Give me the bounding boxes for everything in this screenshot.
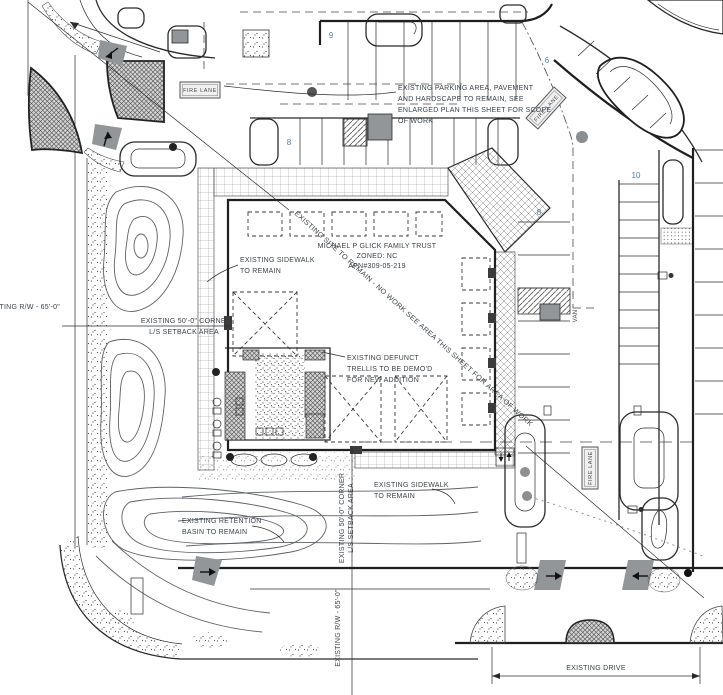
- site-plan-drawing: 9 8 6 FIRE LANE: [0, 0, 723, 695]
- paver-walk: [214, 168, 448, 196]
- parking-stall-lines: [695, 150, 723, 414]
- paver-walk: [495, 252, 515, 455]
- sidewalk-lower-note: EXISTING SIDEWALK TO REMAIN: [374, 482, 455, 504]
- svg-text:ENLARGED PLAN THIS SHEET FOR S: ENLARGED PLAN THIS SHEET FOR SCOPE: [398, 107, 551, 114]
- svg-text:FOR NEW ADDITION: FOR NEW ADDITION: [347, 377, 419, 384]
- area-of-work: [224, 316, 362, 454]
- sidewalk-band: [60, 536, 182, 659]
- setback-south-note: EXISTING 50'-0" CORNER L/S SETBACK AREA: [339, 473, 355, 563]
- stall-count: 10: [632, 171, 641, 180]
- paver-walk: [355, 452, 515, 468]
- svg-text:ZONED: NC: ZONED: NC: [357, 253, 398, 260]
- stall-count: 8: [537, 208, 542, 217]
- svg-text:BASIN TO REMAIN: BASIN TO REMAIN: [182, 529, 247, 536]
- ramp-arrow-icon: [92, 124, 122, 150]
- landscape-wedge: [29, 68, 82, 153]
- planter-row-east: [462, 258, 496, 425]
- fire-lane-sign: FIRE LANE: [582, 447, 598, 489]
- svg-text:TO REMAIN: TO REMAIN: [240, 268, 281, 275]
- tree-dot: [307, 87, 317, 97]
- svg-text:L/S SETBACK AREA: L/S SETBACK AREA: [348, 483, 355, 553]
- sidewalk-upper-note: EXISTING SIDEWALK TO REMAIN: [207, 257, 315, 282]
- svg-text:TRELLIS TO BE DEMO'D: TRELLIS TO BE DEMO'D: [347, 366, 432, 373]
- svg-text:EXISTING 50'-0" CORNER: EXISTING 50'-0" CORNER: [141, 318, 231, 325]
- trellis-outline: [233, 292, 297, 356]
- landscape-wedge: [107, 61, 164, 122]
- equipment-pad: [368, 114, 392, 140]
- svg-text:TO REMAIN: TO REMAIN: [374, 493, 415, 500]
- stall-count: 6: [545, 56, 550, 65]
- tree-dot: [522, 491, 532, 501]
- landscape-patch: [243, 30, 269, 57]
- parking-island: [118, 8, 144, 28]
- curb-return-landscape: [470, 606, 505, 643]
- van-accessible-icon: [658, 272, 674, 279]
- accessible-pad: [540, 304, 560, 320]
- rw-south-label: EXISTING R/W - 65'-0": [335, 589, 342, 667]
- parking-stall-lines: [619, 184, 659, 364]
- planter-row: [248, 212, 442, 236]
- svg-text:MICHAEL P GLICK FAMILY TRUST: MICHAEL P GLICK FAMILY TRUST: [318, 243, 437, 250]
- parking-island: [366, 14, 422, 46]
- parking-island: [663, 160, 683, 224]
- parking-island: [642, 498, 678, 560]
- svg-text:APN#309-05-219: APN#309-05-219: [348, 263, 406, 270]
- courtyard-building: [198, 148, 550, 482]
- trellis-outline: [325, 376, 447, 442]
- sidewalk: [198, 452, 355, 482]
- svg-text:OF WORK: OF WORK: [398, 118, 433, 125]
- svg-text:EXISTING DEFUNCT: EXISTING DEFUNCT: [347, 355, 420, 362]
- hatched-pad: [343, 119, 367, 146]
- svg-text:EXISTING RETENTION: EXISTING RETENTION: [182, 518, 262, 525]
- stall-count: 8: [287, 138, 292, 147]
- drive-arrow-icon: [192, 556, 222, 586]
- owner-note: MICHAEL P GLICK FAMILY TRUST ZONED: NC A…: [318, 243, 437, 270]
- speed-table: [566, 620, 614, 643]
- meter-icon: [544, 406, 551, 415]
- parking-island: [250, 119, 278, 165]
- parking-stall-lines: [300, 118, 498, 165]
- svg-text:EXISTING 50'-0" CORNER: EXISTING 50'-0" CORNER: [339, 473, 346, 563]
- svg-text:L/S SETBACK AREA: L/S SETBACK AREA: [149, 329, 219, 336]
- fire-lane-label: FIRE LANE: [183, 88, 217, 94]
- svg-text:EXISTING SIDEWALK: EXISTING SIDEWALK: [240, 257, 315, 264]
- van-label: VAN: [573, 310, 579, 323]
- curb-return-landscape: [690, 606, 723, 643]
- drive-arrow-icon: [534, 560, 566, 590]
- parking-island: [120, 142, 196, 176]
- fire-lane-label: FIRE LANE: [588, 451, 594, 485]
- trellis-note: EXISTING DEFUNCT TRELLIS TO BE DEMO'D FO…: [322, 352, 432, 384]
- site-furnishing: [131, 578, 143, 614]
- drive-dimension-label: EXISTING DRIVE: [566, 665, 626, 672]
- svg-text:AND HARDSCAPE TO REMAIN, SEE: AND HARDSCAPE TO REMAIN, SEE: [398, 96, 524, 103]
- svg-text:EXISTING PARKING AREA, PAVEMEN: EXISTING PARKING AREA, PAVEMENT: [398, 85, 534, 92]
- paver-plaza: [448, 148, 550, 252]
- tree-dot: [169, 143, 177, 151]
- parking-island: [620, 412, 678, 510]
- entry-island: [598, 58, 684, 138]
- stall-count: 9: [329, 31, 334, 40]
- svg-text:EXISTING SIDEWALK: EXISTING SIDEWALK: [374, 482, 449, 489]
- crosswalk-band: [661, 228, 693, 244]
- tree-dot: [520, 467, 530, 477]
- tree-dot: [576, 131, 588, 143]
- meter-icon: [634, 406, 641, 415]
- fire-lane-sign: FIRE LANE: [180, 82, 220, 98]
- northeast-entry: 6 FIRE LANE: [520, 0, 723, 162]
- drive-dimension: EXISTING DRIVE: [492, 647, 700, 684]
- ramp-arrow-icon: [98, 40, 127, 66]
- rw-west-label: EXISTING R/W - 65'-0": [0, 304, 60, 311]
- utility-dot: [684, 569, 692, 577]
